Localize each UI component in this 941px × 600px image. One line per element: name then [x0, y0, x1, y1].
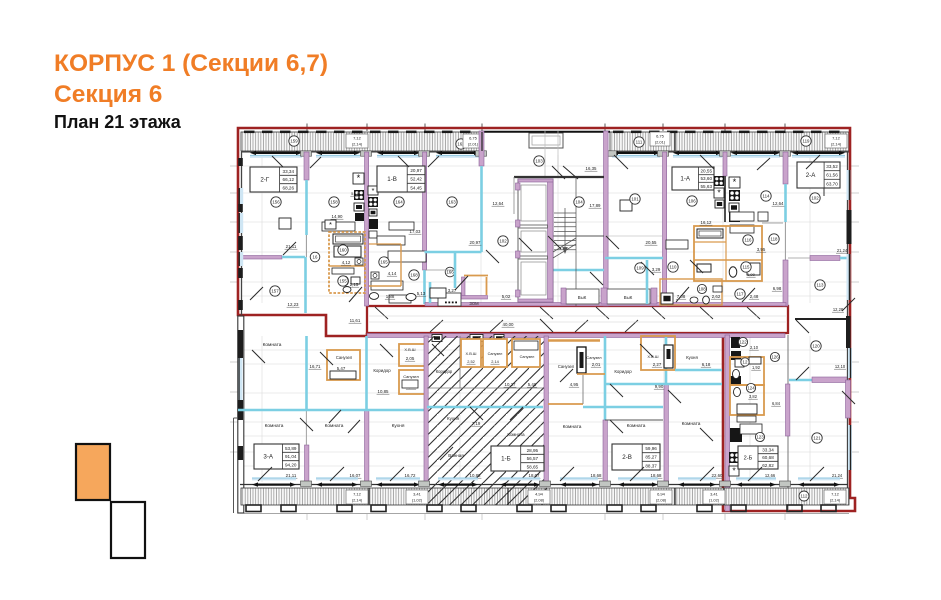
- svg-text:Кухня: Кухня: [686, 355, 698, 360]
- svg-text:12,66: 12,66: [765, 473, 776, 478]
- svg-text:5,13: 5,13: [417, 291, 426, 296]
- svg-text:Секция 6: Секция 6: [54, 81, 162, 108]
- svg-text:11,61: 11,61: [350, 318, 361, 323]
- svg-text:ЗОМ: ЗОМ: [469, 301, 479, 306]
- svg-text:Санузел: Санузел: [336, 355, 353, 360]
- svg-text:2,10: 2,10: [750, 345, 759, 350]
- svg-text:7,12: 7,12: [353, 136, 362, 141]
- svg-text:2-Б: 2-Б: [744, 456, 753, 462]
- svg-text:Комната: Комната: [265, 423, 284, 429]
- svg-text:114: 114: [763, 194, 771, 199]
- svg-text:4,12: 4,12: [342, 260, 351, 265]
- svg-text:110: 110: [670, 265, 678, 270]
- svg-text:121: 121: [813, 436, 821, 441]
- svg-text:Санузел: Санузел: [558, 364, 575, 369]
- svg-text:62,82: 62,82: [762, 463, 774, 468]
- svg-text:1,88: 1,88: [386, 294, 395, 299]
- svg-text:10,27: 10,27: [505, 382, 517, 387]
- svg-text:168: 168: [410, 273, 418, 278]
- svg-text:16,12: 16,12: [701, 220, 713, 225]
- svg-text:Кухня: Кухня: [392, 423, 405, 429]
- svg-text:156: 156: [272, 200, 280, 205]
- svg-text:66,12: 66,12: [283, 177, 295, 182]
- svg-text:16,72: 16,72: [405, 473, 417, 478]
- svg-text:ВыК: ВыК: [578, 295, 587, 300]
- svg-text:4,95: 4,95: [570, 382, 579, 387]
- svg-text:(1,02): (1,02): [709, 498, 720, 503]
- svg-text:1,92: 1,92: [752, 365, 761, 370]
- svg-text:16,35: 16,35: [586, 166, 598, 171]
- svg-text:3,41: 3,41: [413, 492, 422, 497]
- svg-text:Санузел: Санузел: [520, 355, 535, 359]
- svg-text:21,11: 21,11: [286, 473, 297, 478]
- svg-text:163: 163: [448, 200, 456, 205]
- svg-text:61,56: 61,56: [826, 173, 838, 178]
- svg-text:53,89: 53,89: [285, 446, 297, 451]
- svg-text:Санузел: Санузел: [586, 355, 601, 360]
- svg-text:3,27: 3,27: [448, 288, 457, 293]
- svg-text:40,00: 40,00: [503, 322, 515, 327]
- svg-text:166: 166: [446, 270, 454, 275]
- svg-text:111: 111: [636, 140, 643, 145]
- svg-text:33,34: 33,34: [283, 169, 295, 174]
- svg-text:20,55: 20,55: [701, 169, 713, 174]
- svg-text:21,24: 21,24: [832, 473, 843, 478]
- svg-text:124: 124: [747, 386, 755, 391]
- svg-text:(2,14): (2,14): [352, 498, 363, 503]
- svg-text:94,20: 94,20: [285, 463, 297, 468]
- svg-text:*: *: [733, 177, 737, 187]
- svg-text:12,64: 12,64: [493, 201, 505, 206]
- svg-text:18,68: 18,68: [651, 473, 663, 478]
- svg-text:21,24: 21,24: [837, 248, 848, 253]
- svg-text:2,27: 2,27: [653, 362, 662, 367]
- svg-text:2-В: 2-В: [622, 454, 632, 461]
- svg-text:59,96: 59,96: [645, 446, 657, 451]
- svg-text:КОРПУС 1 (Секции 6,7): КОРПУС 1 (Секции 6,7): [54, 50, 328, 77]
- svg-text:12,28: 12,28: [833, 307, 844, 312]
- svg-text:123: 123: [756, 435, 764, 440]
- svg-text:159: 159: [290, 139, 298, 144]
- svg-text:Ванная: Ванная: [448, 453, 464, 458]
- svg-text:3,82: 3,82: [749, 394, 758, 399]
- svg-text:5,18: 5,18: [351, 191, 360, 196]
- svg-text:(2,08): (2,08): [656, 498, 667, 503]
- svg-text:160: 160: [339, 248, 347, 253]
- svg-text:1-Б: 1-Б: [501, 456, 511, 463]
- svg-text:20,55: 20,55: [646, 240, 658, 245]
- svg-text:21,11: 21,11: [286, 244, 297, 249]
- svg-text:155: 155: [339, 279, 347, 284]
- svg-text:4,94: 4,94: [535, 492, 544, 497]
- svg-text:14,90: 14,90: [332, 214, 344, 219]
- svg-text:2,15: 2,15: [350, 282, 359, 287]
- svg-text:(2,14): (2,14): [352, 142, 363, 147]
- svg-text:103: 103: [535, 159, 543, 164]
- svg-text:Санузел: Санузел: [403, 374, 419, 379]
- svg-text:3,41: 3,41: [710, 492, 719, 497]
- svg-text:157: 157: [271, 289, 279, 294]
- svg-text:6,84: 6,84: [772, 401, 781, 406]
- svg-text:3-А: 3-А: [263, 454, 274, 461]
- svg-text:2,52: 2,52: [467, 359, 475, 364]
- svg-text:6,75: 6,75: [656, 134, 665, 139]
- svg-text:16,07: 16,07: [350, 473, 362, 478]
- svg-text:Х.В.Ш: Х.В.Ш: [404, 347, 416, 352]
- svg-text:104: 104: [575, 200, 583, 205]
- svg-text:116: 116: [745, 238, 753, 243]
- svg-text:Кухня: Кухня: [447, 416, 460, 421]
- svg-text:33,52: 33,52: [826, 164, 838, 169]
- svg-text:12: 12: [743, 360, 748, 365]
- svg-text:(2,01): (2,01): [468, 142, 479, 147]
- svg-text:9,90: 9,90: [655, 384, 664, 389]
- svg-text:1,99: 1,99: [747, 272, 756, 277]
- svg-text:6,94: 6,94: [657, 492, 666, 497]
- svg-text:Комната: Комната: [682, 421, 701, 427]
- svg-text:2,62: 2,62: [712, 294, 721, 299]
- svg-text:3,95: 3,95: [757, 247, 766, 252]
- svg-text:119: 119: [803, 139, 811, 144]
- svg-text:10,88: 10,88: [470, 473, 482, 478]
- svg-text:60,68: 60,68: [762, 455, 774, 460]
- svg-text:85,27: 85,27: [645, 455, 657, 460]
- svg-text:108: 108: [698, 287, 706, 292]
- svg-text:(2,08): (2,08): [534, 498, 545, 503]
- svg-text:2-Г: 2-Г: [260, 177, 270, 184]
- svg-text:Комната: Комната: [325, 423, 344, 429]
- svg-text:28,95: 28,95: [527, 448, 539, 453]
- svg-text:Коридор: Коридор: [614, 369, 632, 374]
- svg-text:52,42: 52,42: [410, 177, 422, 182]
- svg-text:7,12: 7,12: [353, 492, 362, 497]
- svg-text:17,03: 17,03: [410, 229, 422, 234]
- svg-text:Комната: Комната: [263, 342, 282, 348]
- svg-text:Комната: Комната: [627, 423, 646, 429]
- svg-text:68,26: 68,26: [283, 186, 295, 191]
- svg-text:54,45: 54,45: [410, 185, 422, 190]
- svg-text:113: 113: [817, 283, 825, 288]
- svg-text:12,64: 12,64: [773, 201, 785, 206]
- svg-text:16: 16: [313, 255, 318, 260]
- svg-text:91,04: 91,04: [285, 454, 297, 459]
- svg-text:18,68: 18,68: [591, 473, 603, 478]
- svg-text:6,18: 6,18: [702, 362, 711, 367]
- svg-text:6,75: 6,75: [469, 136, 478, 141]
- svg-text:7,19: 7,19: [472, 421, 481, 426]
- svg-text:2,05: 2,05: [406, 356, 415, 361]
- svg-text:5,47: 5,47: [337, 366, 346, 371]
- svg-text:118: 118: [771, 237, 779, 242]
- svg-text:112: 112: [801, 494, 809, 499]
- svg-text:2-А: 2-А: [806, 172, 817, 179]
- svg-text:Коридор: Коридор: [436, 369, 453, 374]
- svg-text:(2,14): (2,14): [830, 498, 841, 503]
- svg-text:(2,14): (2,14): [831, 142, 842, 147]
- svg-text:3,29: 3,29: [652, 267, 661, 272]
- svg-text:6,98: 6,98: [773, 286, 782, 291]
- svg-text:5,49: 5,49: [528, 382, 537, 387]
- svg-text:16,71: 16,71: [310, 364, 322, 369]
- svg-text:20,97: 20,97: [410, 168, 422, 173]
- svg-text:7,08: 7,08: [677, 294, 686, 299]
- svg-text:Комната: Комната: [507, 432, 525, 437]
- svg-text:Комната: Комната: [563, 424, 582, 430]
- svg-text:10,85: 10,85: [378, 389, 390, 394]
- svg-text:7,12: 7,12: [831, 492, 840, 497]
- svg-text:2,01: 2,01: [592, 362, 601, 367]
- svg-text:1-В: 1-В: [387, 176, 397, 183]
- svg-text:55,63: 55,63: [701, 184, 713, 189]
- svg-text:Х.В.Ш: Х.В.Ш: [466, 351, 477, 356]
- svg-text:*: *: [329, 220, 332, 229]
- svg-text:2,48: 2,48: [750, 294, 759, 299]
- svg-text:53,60: 53,60: [701, 176, 713, 181]
- svg-text:17,89: 17,89: [590, 203, 602, 208]
- svg-text:20,97: 20,97: [470, 240, 482, 245]
- svg-text:7,12: 7,12: [832, 136, 841, 141]
- svg-text:*: *: [372, 186, 375, 195]
- svg-text:102: 102: [499, 239, 507, 244]
- svg-text:1-А: 1-А: [680, 176, 691, 183]
- svg-text:120: 120: [812, 344, 820, 349]
- svg-text:115: 115: [743, 265, 751, 270]
- svg-text:126: 126: [771, 355, 779, 360]
- svg-text:106: 106: [688, 199, 696, 204]
- svg-text:117: 117: [737, 292, 745, 297]
- svg-text:109: 109: [636, 266, 644, 271]
- svg-text:56,57: 56,57: [527, 456, 539, 461]
- svg-text:164: 164: [395, 200, 403, 205]
- svg-text:2,14: 2,14: [491, 359, 499, 364]
- svg-text:*: *: [357, 173, 361, 183]
- svg-text:(1,02): (1,02): [412, 498, 423, 503]
- svg-text:План 21 этажа: План 21 этажа: [54, 112, 182, 132]
- svg-text:12,23: 12,23: [288, 302, 300, 307]
- svg-text:158: 158: [330, 200, 338, 205]
- svg-text:63,70: 63,70: [826, 181, 838, 186]
- svg-text:Санузел: Санузел: [488, 352, 503, 356]
- svg-text:Коридор: Коридор: [373, 368, 391, 373]
- svg-text:ВыК: ВыК: [624, 295, 633, 300]
- svg-text:(2,01): (2,01): [655, 140, 666, 145]
- svg-text:33,34: 33,34: [762, 448, 774, 453]
- svg-text:12,10: 12,10: [835, 364, 846, 369]
- svg-text:165: 165: [380, 260, 388, 265]
- svg-text:58,65: 58,65: [527, 465, 539, 470]
- svg-text:22,60: 22,60: [712, 473, 724, 478]
- svg-text:18,07: 18,07: [529, 473, 541, 478]
- svg-text:122: 122: [739, 340, 747, 345]
- svg-text:4,14: 4,14: [388, 271, 397, 276]
- svg-text:5,02: 5,02: [502, 294, 511, 299]
- svg-text:88,37: 88,37: [645, 463, 657, 468]
- svg-text:101: 101: [631, 197, 639, 202]
- svg-text:102: 102: [811, 196, 819, 201]
